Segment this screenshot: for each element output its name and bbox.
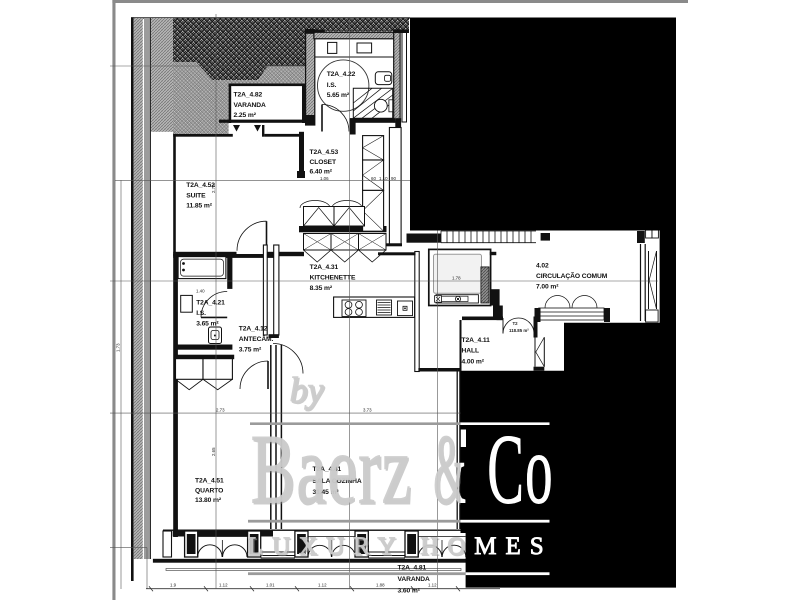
svg-text:CLOSET: CLOSET xyxy=(310,159,338,166)
svg-text:QUARTO: QUARTO xyxy=(195,487,223,494)
svg-text:1.9: 1.9 xyxy=(170,583,177,588)
svg-text:1.73: 1.73 xyxy=(116,343,121,352)
svg-text:2.72: 2.72 xyxy=(211,184,216,193)
svg-text:1.40: 1.40 xyxy=(196,289,205,294)
svg-text:6.40 m²: 6.40 m² xyxy=(310,169,333,176)
svg-text:1.06: 1.06 xyxy=(320,176,329,181)
svg-text:1.12: 1.12 xyxy=(219,583,228,588)
svg-text:I.S.: I.S. xyxy=(196,310,206,317)
svg-text:ANTECÂM.: ANTECÂM. xyxy=(239,334,274,343)
svg-text:8.35 m²: 8.35 m² xyxy=(310,285,333,292)
svg-text:T2A_4.22: T2A_4.22 xyxy=(327,71,356,78)
svg-text:VARANDA: VARANDA xyxy=(398,576,431,583)
svg-text:HALL: HALL xyxy=(462,348,479,355)
svg-text:T2A_4.31: T2A_4.31 xyxy=(310,264,339,271)
svg-text:T2: T2 xyxy=(513,321,519,326)
svg-text:3.75 m²: 3.75 m² xyxy=(239,347,262,354)
svg-text:2.25 m²: 2.25 m² xyxy=(234,112,257,119)
svg-text:SUITE: SUITE xyxy=(186,193,206,200)
svg-text:118.85 m²: 118.85 m² xyxy=(509,328,529,333)
svg-text:1.12: 1.12 xyxy=(428,583,437,588)
svg-text:CIRCULAÇÃO COMUM: CIRCULAÇÃO COMUM xyxy=(536,271,608,280)
svg-text:T2A_4.12: T2A_4.12 xyxy=(239,326,268,333)
svg-text:T2A_4.21: T2A_4.21 xyxy=(196,300,225,307)
svg-text:1.01: 1.01 xyxy=(266,583,275,588)
svg-text:I.S.: I.S. xyxy=(327,82,337,89)
svg-text:1.88: 1.88 xyxy=(376,583,385,588)
svg-text:T2A_4.11: T2A_4.11 xyxy=(462,337,491,344)
svg-text:11.85 m²: 11.85 m² xyxy=(186,203,212,210)
svg-text:5.65 m²: 5.65 m² xyxy=(327,92,350,99)
svg-text:KITCHENETTE: KITCHENETTE xyxy=(310,275,356,282)
svg-text:7.00 m²: 7.00 m² xyxy=(536,284,559,291)
svg-text:VARANDA: VARANDA xyxy=(234,102,267,109)
svg-text:1.10: 1.10 xyxy=(379,176,388,181)
svg-text:60: 60 xyxy=(371,176,376,181)
svg-text:1.12: 1.12 xyxy=(318,583,327,588)
svg-text:T2A_4.53: T2A_4.53 xyxy=(310,149,339,156)
svg-text:4.02: 4.02 xyxy=(536,263,549,270)
svg-text:4.00 m²: 4.00 m² xyxy=(462,358,485,365)
svg-text:T2A_4.82: T2A_4.82 xyxy=(234,92,263,99)
svg-text:2.73: 2.73 xyxy=(216,408,225,413)
svg-text:90: 90 xyxy=(391,176,396,181)
svg-text:T2A_4.81: T2A_4.81 xyxy=(398,565,427,572)
svg-text:2.65: 2.65 xyxy=(211,447,216,456)
svg-text:1.78: 1.78 xyxy=(452,276,461,281)
svg-text:3.73: 3.73 xyxy=(363,408,372,413)
svg-text:13.80 m²: 13.80 m² xyxy=(195,497,222,504)
svg-text:T2A_4.51: T2A_4.51 xyxy=(195,478,224,485)
